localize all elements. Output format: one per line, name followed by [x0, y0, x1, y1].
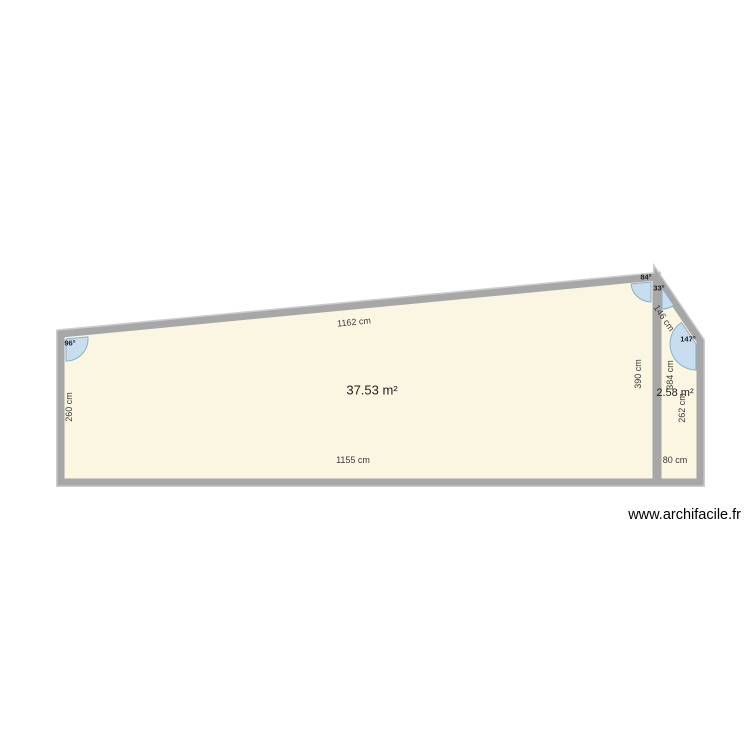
watermark: www.archifacile.fr	[627, 507, 741, 523]
plan-canvas: 96° 84° 33° 147° 1162 cm 260 cm 1155 cm …	[0, 0, 750, 750]
dimension-bottom-wall: 1155 cm	[336, 455, 370, 465]
angle-label-96: 96°	[64, 339, 75, 348]
dimension-divider-wall-left: 390 cm	[633, 359, 643, 389]
angle-label-33: 33°	[653, 284, 664, 293]
dimension-divider-wall-right: 384 cm	[665, 360, 675, 390]
dimension-left-wall: 260 cm	[64, 392, 74, 422]
room-main-area-label: 37.53 m²	[346, 383, 398, 398]
angle-label-84: 84°	[640, 273, 651, 282]
room-main[interactable]	[61, 277, 656, 482]
floorplan-svg: 96° 84° 33° 147° 1162 cm 260 cm 1155 cm …	[0, 0, 750, 750]
angle-label-147: 147°	[680, 335, 696, 344]
walls-layer	[61, 277, 700, 482]
room-annex-area-label: 2.58 m²	[656, 387, 694, 399]
dimension-annex-bottom-wall: 80 cm	[663, 455, 688, 465]
